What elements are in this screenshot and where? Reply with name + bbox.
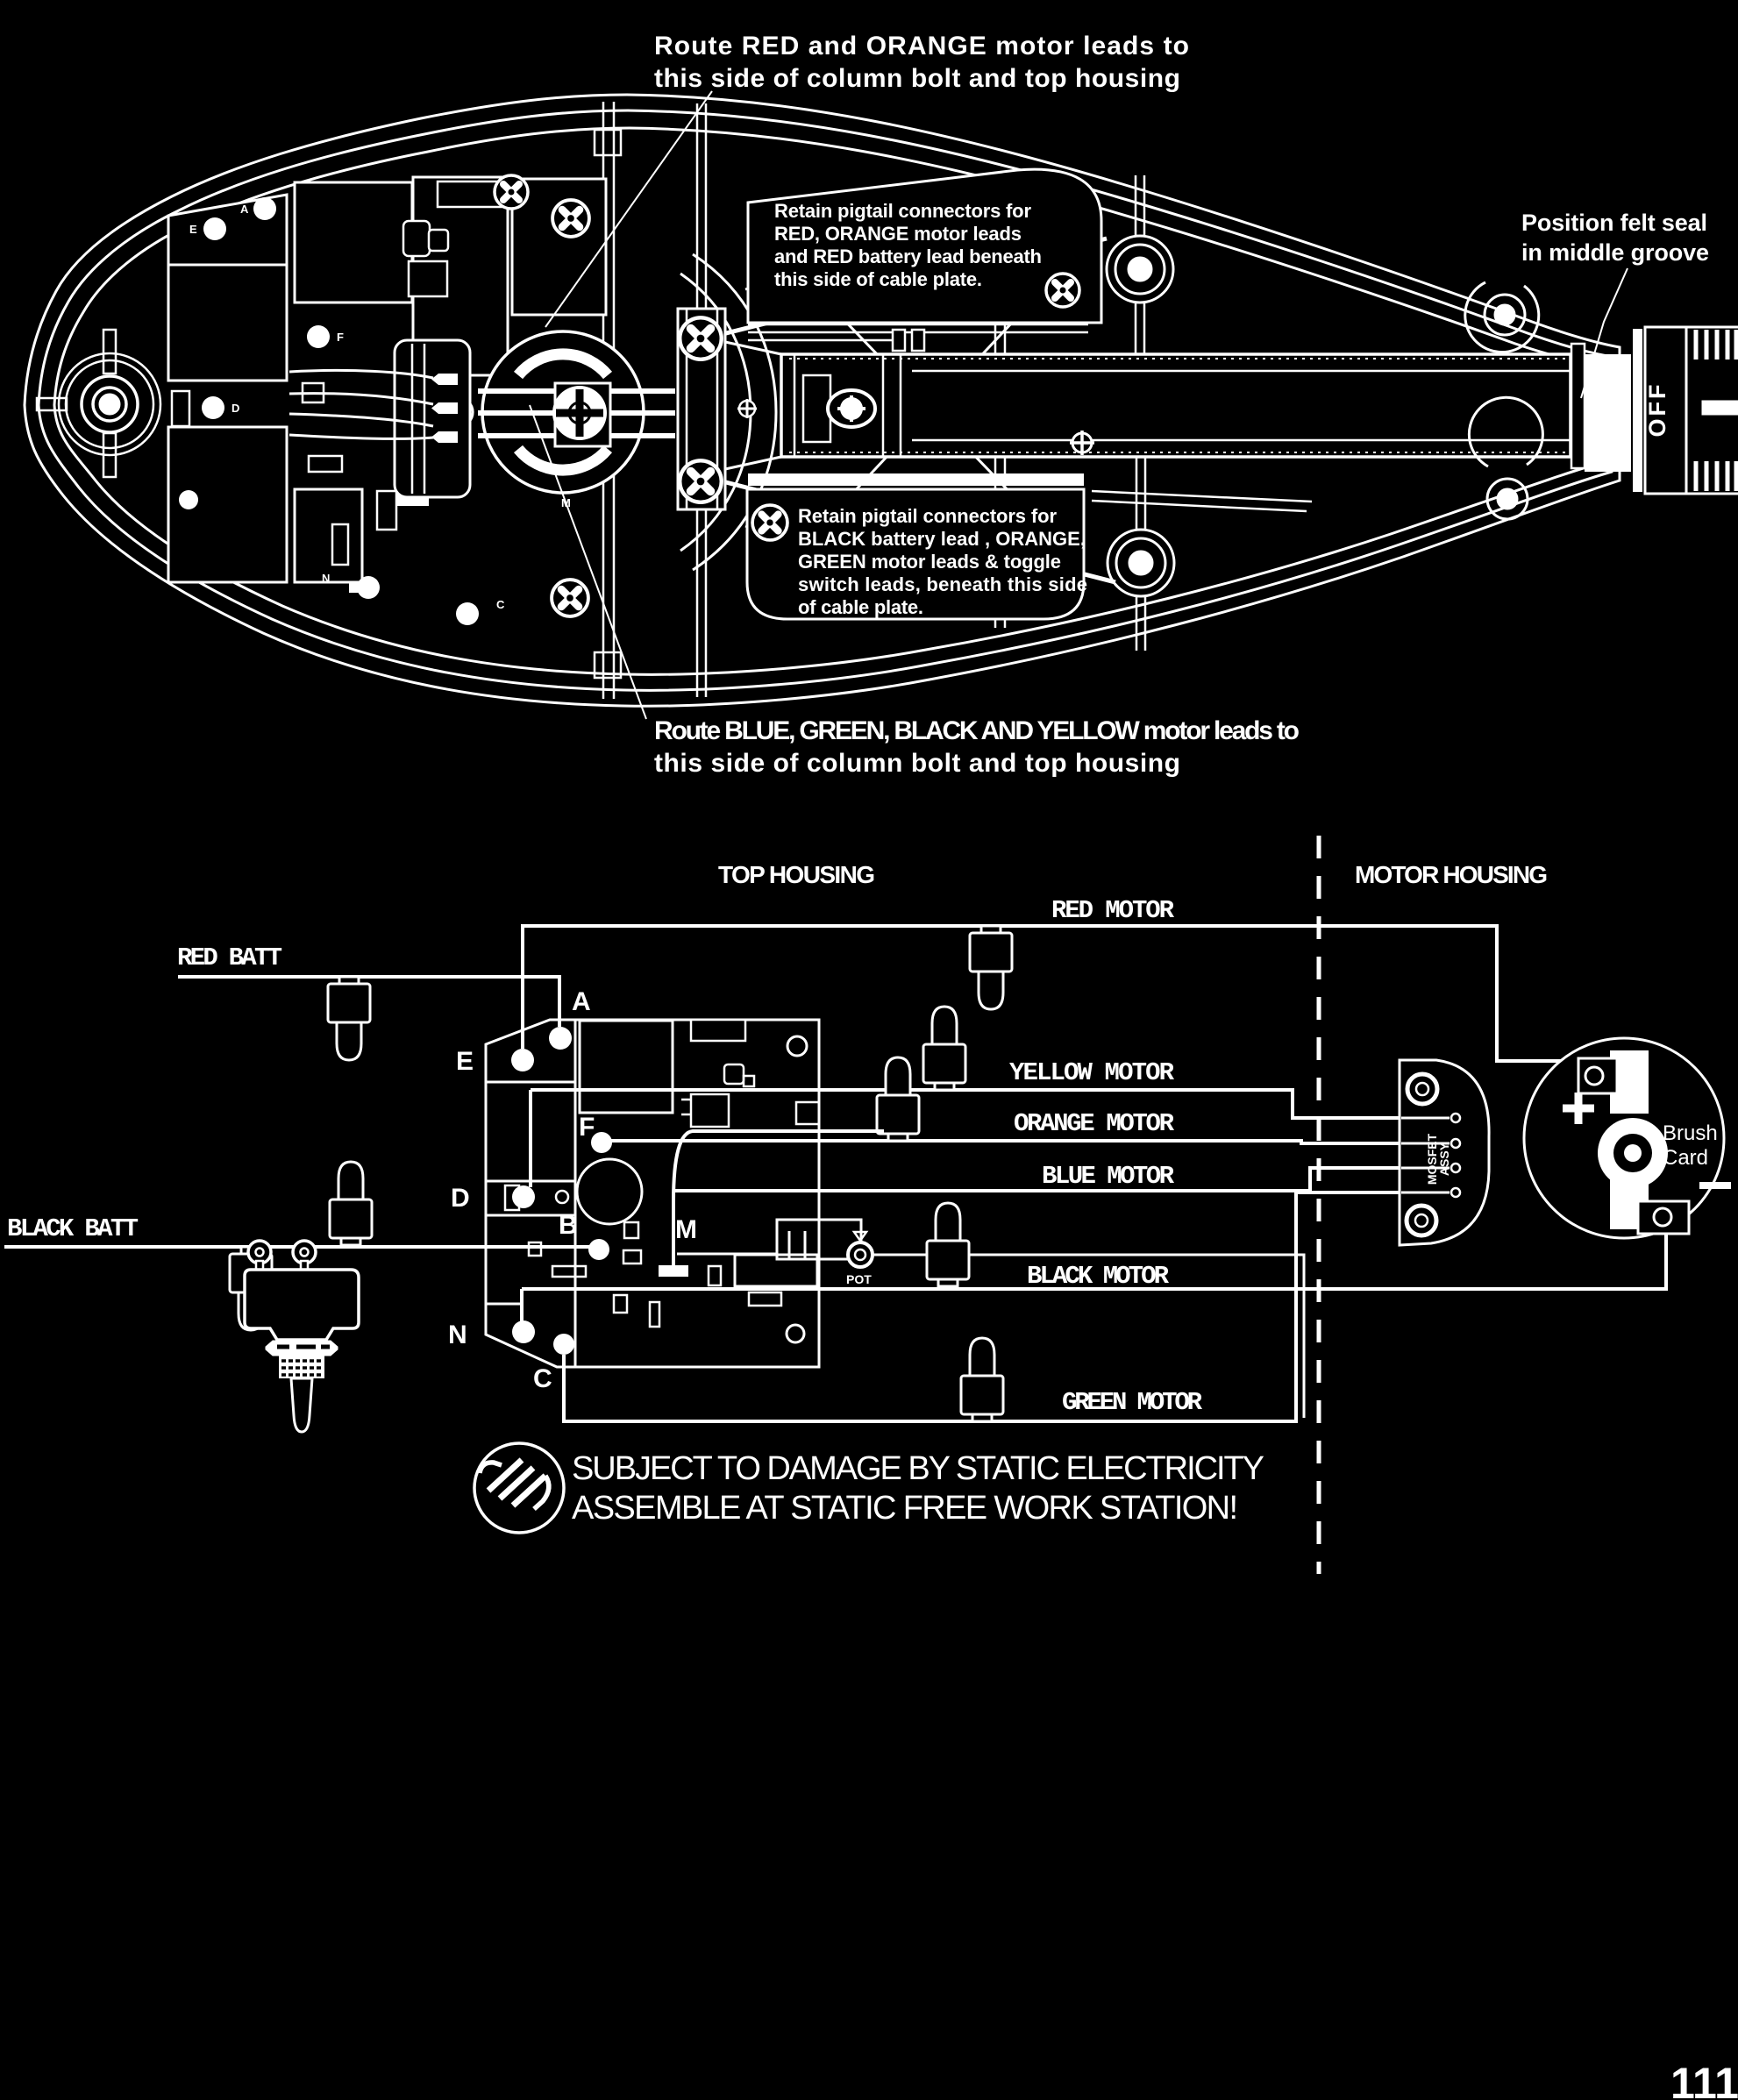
svg-text:RED BATT: RED BATT — [177, 943, 282, 972]
svg-text:E: E — [456, 1047, 474, 1076]
svg-text:ASSEMBLE AT STATIC FREE WORK S: ASSEMBLE AT STATIC FREE WORK STATION! — [572, 1490, 1238, 1527]
svg-text:E: E — [189, 223, 197, 236]
svg-text:RED MOTOR: RED MOTOR — [1051, 896, 1175, 925]
svg-text:D: D — [451, 1184, 470, 1213]
svg-text:Route BLUE, GREEN, BLACK AND: Route BLUE, GREEN, BLACK AND YELLOW moto… — [654, 716, 1300, 745]
svg-text:C: C — [496, 598, 505, 611]
svg-text:Brush: Brush — [1663, 1121, 1718, 1145]
svg-text:D: D — [231, 402, 239, 415]
svg-text:Retain pigtail connectors for: Retain pigtail connectors for — [774, 200, 1031, 222]
svg-text:RED, ORANGE motor leads: RED, ORANGE motor leads — [774, 223, 1022, 245]
svg-text:YELLOW MOTOR: YELLOW MOTOR — [1009, 1058, 1175, 1087]
svg-text:C: C — [533, 1364, 552, 1393]
svg-text:BLACK MOTOR: BLACK MOTOR — [1027, 1262, 1170, 1291]
svg-text:M: M — [675, 1215, 697, 1244]
svg-text:MOTOR HOUSING: MOTOR HOUSING — [1355, 861, 1548, 888]
svg-text:F: F — [337, 331, 344, 344]
svg-text:BLACK battery lead , ORANGE,: BLACK battery lead , ORANGE, — [798, 528, 1086, 550]
svg-text:A: A — [240, 203, 249, 216]
svg-text:in middle groove: in middle groove — [1521, 239, 1709, 266]
svg-text:ASSY: ASSY — [1437, 1142, 1451, 1176]
svg-text:POT: POT — [846, 1272, 872, 1286]
svg-text:OFF: OFF — [1644, 382, 1670, 438]
svg-text:TOP HOUSING: TOP HOUSING — [718, 861, 875, 888]
svg-text:1110: 1110 — [1670, 2059, 1738, 2100]
svg-text:SUBJECT TO DAMAGE BY STATIC EL: SUBJECT TO DAMAGE BY STATIC ELECTRICITY — [572, 1450, 1264, 1487]
svg-text:ORANGE MOTOR: ORANGE MOTOR — [1014, 1109, 1175, 1138]
svg-text:this side of cable plate.: this side of cable plate. — [774, 268, 982, 290]
svg-text:F: F — [579, 1113, 595, 1142]
svg-text:this side of column bolt and t: this side of column bolt and top housing — [654, 64, 1180, 93]
svg-text:Route RED and ORANGE motor lea: Route RED and ORANGE motor leads to — [654, 32, 1189, 61]
svg-text:Retain pigtail connectors for: Retain pigtail connectors for — [798, 505, 1057, 527]
svg-text:N: N — [448, 1321, 467, 1349]
svg-text:and RED battery lead beneath: and RED battery lead beneath — [774, 246, 1042, 267]
svg-text:Position felt seal: Position felt seal — [1521, 210, 1707, 236]
svg-text:this side of column bolt and t: this side of column bolt and top housing — [654, 749, 1180, 778]
svg-text:of cable plate.: of cable plate. — [798, 596, 923, 618]
svg-text:A: A — [572, 987, 591, 1016]
svg-text:GREEN MOTOR: GREEN MOTOR — [1062, 1388, 1203, 1417]
svg-text:BLACK BATT: BLACK BATT — [7, 1214, 139, 1243]
svg-text:BLUE MOTOR: BLUE MOTOR — [1042, 1162, 1175, 1191]
svg-text:Card: Card — [1663, 1146, 1708, 1170]
svg-text:GREEN motor leads & toggle: GREEN motor leads & toggle — [798, 551, 1061, 573]
svg-text:N: N — [322, 572, 330, 585]
svg-text:switch leads, beneath this s: switch leads, beneath this side — [798, 573, 1087, 595]
